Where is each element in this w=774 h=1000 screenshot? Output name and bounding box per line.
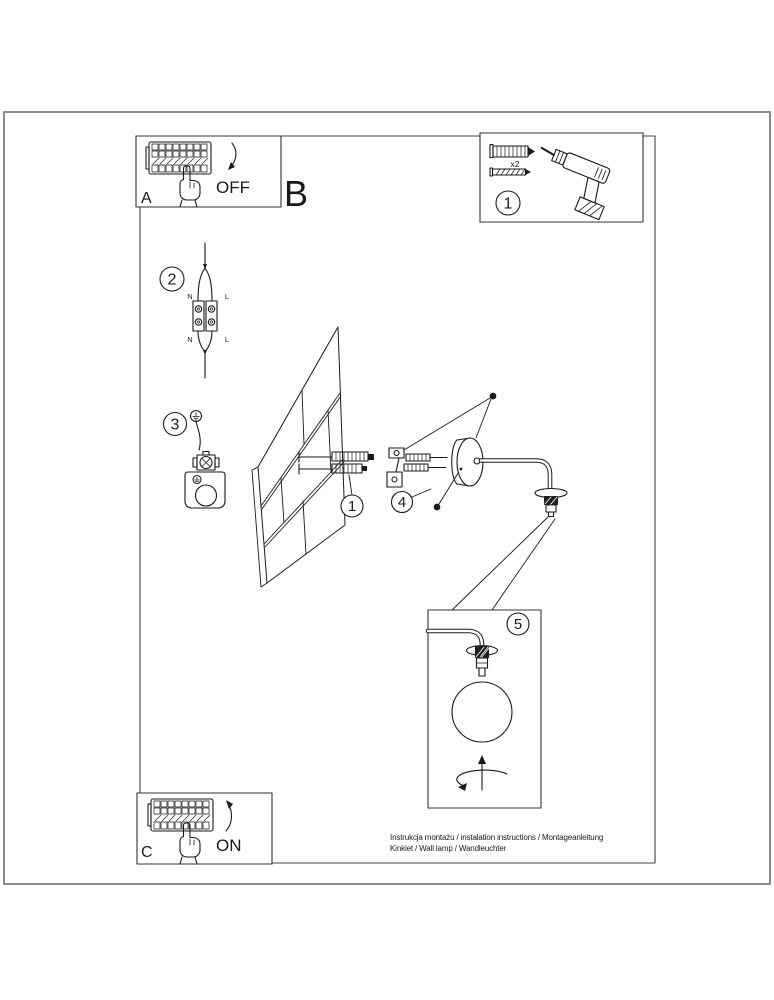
panel-b-letter: B [284, 173, 308, 214]
step-3-ground: 3 [164, 411, 226, 509]
terminal-label-l-top: L [225, 292, 229, 301]
terminal-label-n-top: N [187, 292, 192, 301]
step-3-callout: 3 [164, 413, 187, 436]
dowel-callout-number: 1 [348, 498, 356, 515]
ground-symbol-icon [191, 411, 202, 422]
set-screw-callout-number: 4 [398, 494, 406, 511]
panel-c-switch-label: ON [216, 836, 242, 855]
parts-step-callout: 1 [496, 191, 520, 215]
panel-c-letter: C [141, 844, 153, 861]
ground-clamp-icon [193, 452, 219, 471]
step-5-number: 5 [514, 616, 522, 633]
step-5-detail: 5 [428, 610, 541, 808]
step-2-callout: 2 [160, 267, 184, 291]
lamp-body [452, 438, 567, 610]
instruction-diagram: OFF A B x2 1 [0, 0, 774, 1000]
detail-leader-lines [452, 517, 555, 610]
glass-globe-icon [452, 682, 512, 742]
dowel-assembly: 1 [299, 452, 374, 517]
plug-quantity-label: x2 [511, 159, 520, 169]
terminal-label-l-bottom: L [225, 335, 229, 344]
footer-line-2: Kinkiet / Wall lamp / Wandleuchter [390, 844, 507, 853]
terminal-block-icon [193, 243, 217, 378]
parts-box: x2 1 [480, 133, 643, 222]
step-2-number: 2 [168, 272, 177, 289]
panel-a: OFF A [136, 136, 281, 207]
set-screw-callout: 4 [392, 492, 413, 513]
set-screw-icon-bottom [434, 504, 440, 510]
panel-a-letter: A [141, 190, 152, 207]
terminal-label-n-bottom: N [187, 335, 192, 344]
panel-c-box [137, 793, 272, 864]
step-2-wiring: 2 N L N L [160, 243, 229, 378]
lamp-arm [481, 461, 550, 490]
footer-text: Instrukcja montażu / instalation instruc… [390, 833, 603, 853]
step-5-callout: 5 [507, 613, 529, 635]
parts-step-number: 1 [504, 196, 513, 213]
panel-a-switch-label: OFF [216, 178, 250, 197]
step-3-number: 3 [171, 417, 180, 434]
ground-wire [196, 422, 200, 450]
panel-c: ON C [137, 793, 272, 864]
shade-disc [535, 489, 567, 517]
mounting-plate-icon [185, 472, 225, 508]
set-screw-icon-top [490, 393, 496, 399]
canopy [452, 438, 483, 486]
page: OFF A B x2 1 [0, 0, 774, 1000]
dowel-callout: 1 [341, 495, 363, 517]
footer-line-1: Instrukcja montażu / instalation instruc… [390, 833, 603, 842]
